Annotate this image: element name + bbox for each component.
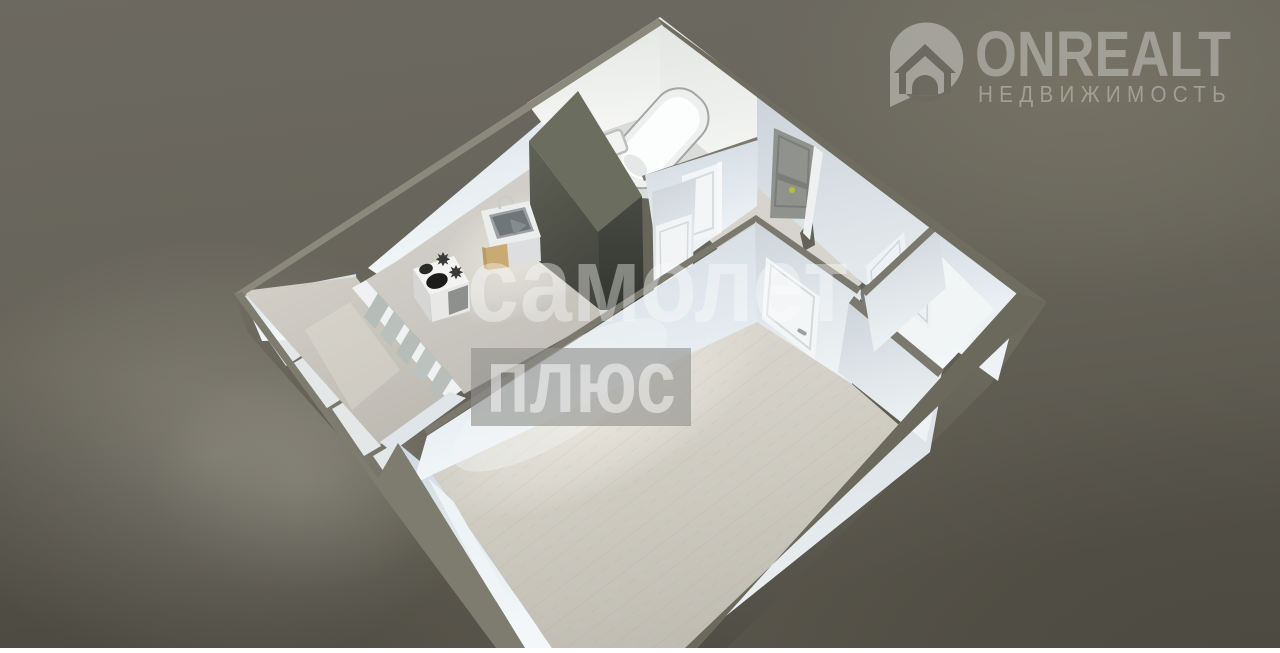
svg-text:плюс: плюс xyxy=(486,332,676,432)
svg-text:НЕДВИЖИМОСТЬ: НЕДВИЖИМОСТЬ xyxy=(978,81,1232,107)
svg-text:самолет: самолет xyxy=(467,223,849,344)
svg-text:ONREALT: ONREALT xyxy=(975,18,1231,90)
